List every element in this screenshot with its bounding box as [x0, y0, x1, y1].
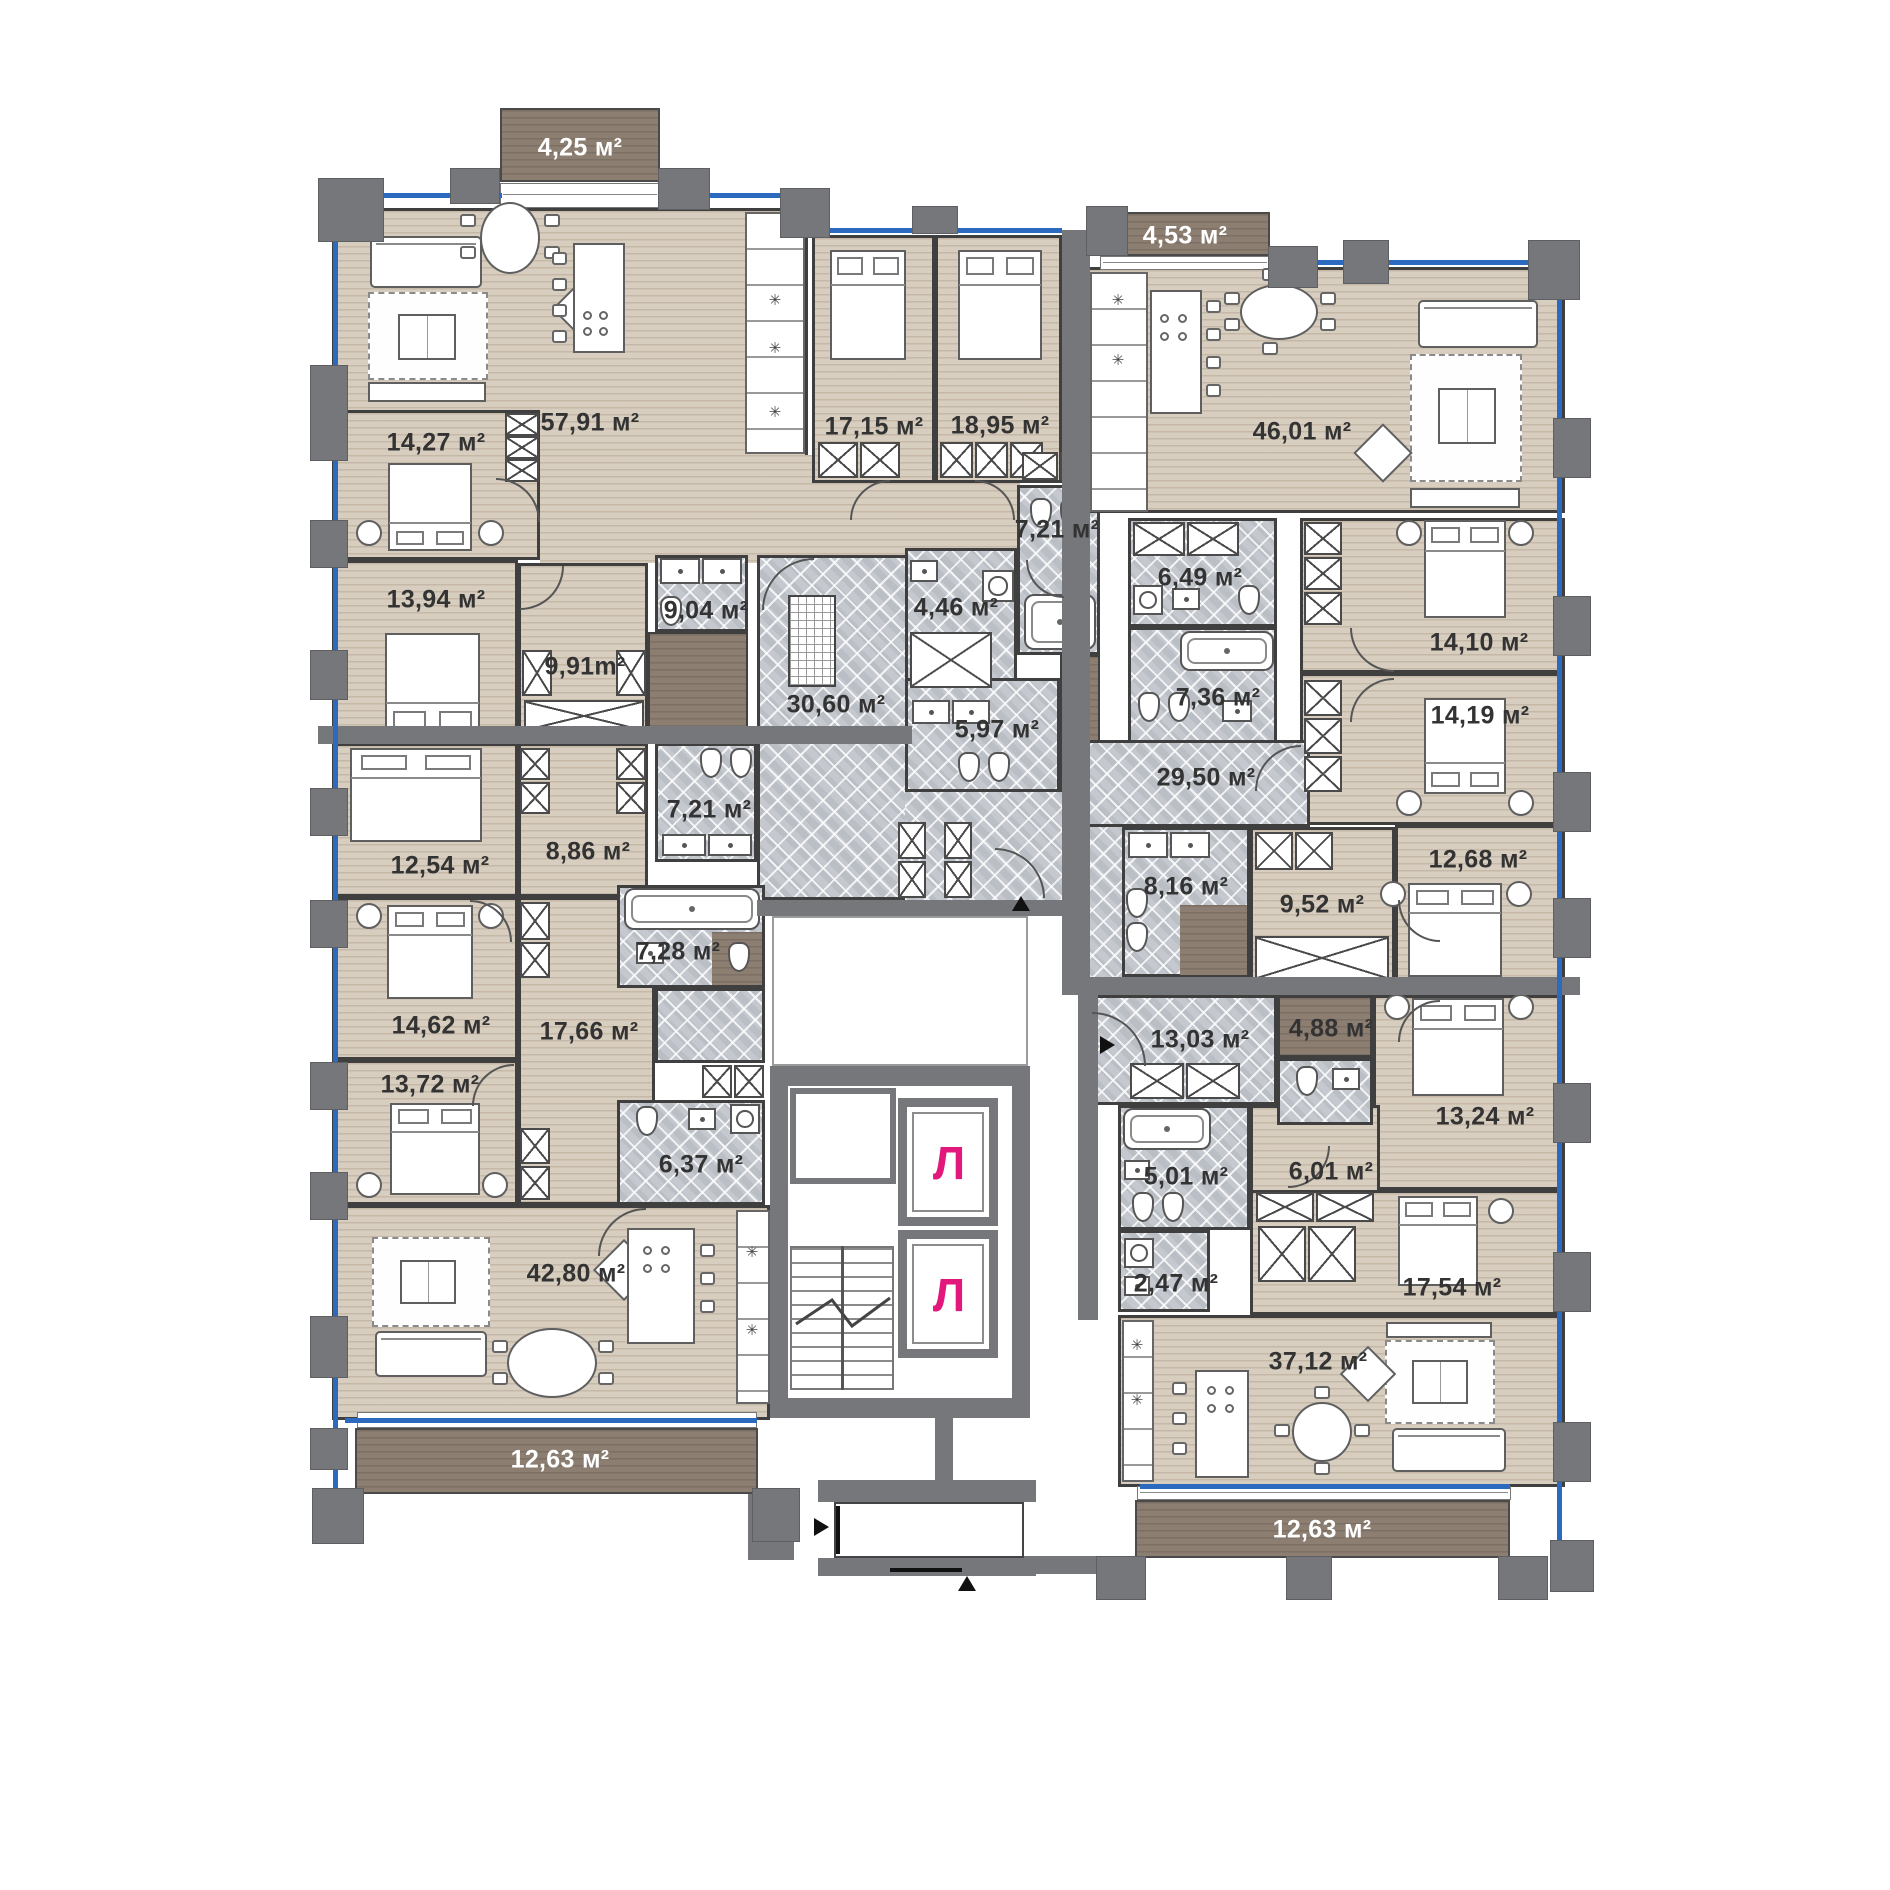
- closet: [520, 1166, 550, 1200]
- closet: [898, 861, 926, 898]
- freezer-icon: ✳: [769, 339, 782, 357]
- elevator-1-label: Л: [933, 1136, 965, 1190]
- chair: [1320, 318, 1336, 331]
- area-label-bath-6-37: 6,37 м²: [659, 1151, 744, 1180]
- stool: [552, 252, 567, 265]
- fridge-icon: ✳: [746, 1243, 759, 1261]
- closet: [520, 748, 550, 780]
- double-sink: [708, 834, 752, 856]
- area-label-balcony-bottom-right: 12,63 м²: [1273, 1516, 1372, 1545]
- area-label-hall-9-52: 9,52 м²: [1280, 891, 1365, 920]
- freezer-icon: ✳: [1131, 1391, 1144, 1409]
- closet: [520, 1128, 550, 1164]
- window-line-bottom-left: [345, 1418, 757, 1423]
- fridge-icon: ✳: [1131, 1336, 1144, 1354]
- closet: [520, 902, 550, 940]
- chair: [1274, 1424, 1290, 1437]
- pilaster: [1286, 1556, 1332, 1600]
- bed-14-62: [387, 905, 473, 999]
- area-label-bedroom-18-95: 18,95 м²: [951, 412, 1050, 441]
- closet: [702, 1065, 732, 1098]
- stool: [700, 1272, 715, 1285]
- window-band-top-left: [500, 183, 660, 208]
- pilaster: [310, 1172, 348, 1220]
- area-label-bedroom-12-54: 12,54 м²: [391, 852, 490, 881]
- laundry-cabinet: [910, 632, 992, 688]
- pilaster: [1553, 1422, 1591, 1482]
- area-label-bedroom-17-15: 17,15 м²: [825, 413, 924, 442]
- chair: [1262, 342, 1278, 355]
- closet: [818, 442, 858, 478]
- chair: [492, 1372, 508, 1385]
- stair-direction-zigzag: [794, 1290, 892, 1334]
- closet: [1255, 832, 1293, 870]
- closet: [1187, 522, 1239, 556]
- area-label-bath-7-21-center: 7,21 м²: [1015, 516, 1100, 545]
- closet: [975, 442, 1008, 478]
- core-wall-top: [770, 1066, 1030, 1086]
- elevator-2-label: Л: [933, 1268, 965, 1322]
- area-label-corridor-29-50: 29,50 м²: [1157, 764, 1256, 793]
- bed-18-95: [958, 250, 1042, 360]
- area-label-bath-7-36: 7,36 м²: [1176, 684, 1261, 713]
- stool: [1206, 356, 1221, 369]
- pilaster: [312, 1488, 364, 1544]
- entry-arrow-vestibule: [814, 1518, 829, 1536]
- chair: [544, 214, 560, 227]
- area-label-bedroom-14-10: 14,10 м²: [1430, 629, 1529, 658]
- pilaster: [310, 650, 348, 700]
- pilaster: [752, 1488, 800, 1542]
- closet: [1186, 1063, 1240, 1099]
- sofa: [1392, 1428, 1506, 1472]
- bathtub: [1123, 1108, 1211, 1150]
- closet: [1304, 557, 1342, 590]
- bathtub: [1180, 631, 1274, 671]
- core-wall-right: [1012, 1066, 1030, 1418]
- closet: [944, 861, 972, 898]
- closet: [1316, 1192, 1374, 1222]
- coffee-table: [1438, 388, 1496, 444]
- pilaster: [318, 178, 384, 242]
- area-label-balcony-bottom-left: 12,63 м²: [511, 1446, 610, 1475]
- pilaster: [1343, 240, 1389, 284]
- wine-icon: ✳: [769, 403, 782, 421]
- pilaster: [310, 788, 348, 836]
- bed-14-10: [1424, 520, 1506, 618]
- chair: [1224, 318, 1240, 331]
- closet: [734, 1065, 764, 1098]
- area-label-bedroom-13-72: 13,72 м²: [381, 1071, 480, 1100]
- entry-door-line: [890, 1568, 962, 1572]
- pilaster: [780, 188, 830, 238]
- core-wall-bottom: [770, 1398, 1030, 1418]
- wall-between-wings: [1062, 230, 1090, 995]
- entry-door-line: [836, 1506, 840, 1554]
- stool: [552, 330, 567, 343]
- pilaster: [310, 900, 348, 948]
- area-label-bedroom-14-62: 14,62 м²: [392, 1012, 491, 1041]
- machine-room: [790, 1088, 896, 1184]
- closet: [1304, 756, 1342, 792]
- closet: [520, 942, 550, 978]
- closet: [520, 782, 550, 814]
- closet: [860, 442, 900, 478]
- pilaster: [658, 168, 710, 210]
- double-sink: [1170, 832, 1210, 858]
- closet: [1258, 1226, 1306, 1282]
- area-label-bath-7-21-left: 7,21 м²: [667, 796, 752, 825]
- area-label-hall-8-86: 8,86 м²: [546, 838, 631, 867]
- area-label-utility-2-47: 2,47 м²: [1134, 1270, 1219, 1299]
- closet: [898, 822, 926, 859]
- chair: [1314, 1462, 1330, 1475]
- tv-bench: [1410, 488, 1520, 508]
- fridge-icon: ✳: [1112, 291, 1125, 309]
- bed-13-94: [385, 633, 480, 735]
- room-corridor-29-50-v: [1085, 827, 1122, 995]
- core-stub-wall: [935, 1418, 953, 1482]
- bed-13-72: [390, 1103, 480, 1195]
- closet: [1304, 718, 1342, 754]
- area-label-bedroom-17-54: 17,54 м²: [1403, 1274, 1502, 1303]
- nightstand: [1508, 994, 1534, 1020]
- double-sink: [660, 558, 700, 584]
- sink: [688, 1108, 716, 1130]
- chair: [598, 1372, 614, 1385]
- pilaster: [1553, 898, 1591, 958]
- sofa: [375, 1331, 487, 1377]
- dining-table: [1240, 284, 1318, 340]
- area-label-hall-13-03: 13,03 м²: [1151, 1026, 1250, 1055]
- nightstand: [356, 903, 382, 929]
- nightstand: [356, 520, 382, 546]
- pilaster: [310, 520, 348, 568]
- pilaster: [450, 168, 500, 204]
- entry-arrow-right-apartment: [1100, 1036, 1115, 1054]
- round-table: [1292, 1402, 1352, 1462]
- nightstand: [1508, 520, 1534, 546]
- area-label-living-42-80: 42,80 м²: [527, 1260, 626, 1289]
- area-label-bedroom-14-27: 14,27 м²: [387, 429, 486, 458]
- closet: [1304, 680, 1342, 716]
- area-label-hall-9-91: 9,91m²: [544, 653, 625, 682]
- pilaster: [1498, 1556, 1548, 1600]
- area-label-bath-5-97: 5,97 м²: [955, 716, 1040, 745]
- coffee-table: [400, 1260, 456, 1304]
- area-label-bath-9-04: 9,04 м²: [664, 597, 749, 626]
- kitchen-island: [1150, 290, 1202, 414]
- area-label-bath-5-01: 5,01 м²: [1144, 1163, 1229, 1192]
- dining-table: [507, 1328, 597, 1398]
- wall-left-horizontal: [318, 726, 912, 744]
- pilaster: [1550, 1540, 1594, 1592]
- area-label-bedroom-13-94: 13,94 м²: [387, 586, 486, 615]
- pilaster: [1553, 596, 1591, 656]
- tv-bench: [368, 382, 486, 402]
- area-label-balcony-top-right: 4,53 м²: [1143, 222, 1228, 251]
- washer: [730, 1104, 760, 1134]
- area-label-living-46-01: 46,01 м²: [1253, 418, 1352, 447]
- pilaster: [310, 1062, 348, 1110]
- closet: [944, 822, 972, 859]
- kitchen-island: [1195, 1370, 1249, 1478]
- vestibule-wall-top: [818, 1480, 1036, 1502]
- vanity-floor-brown-8-16: [1180, 905, 1247, 975]
- area-label-bedroom-13-24: 13,24 м²: [1436, 1103, 1535, 1132]
- kitchen-island: [573, 243, 625, 353]
- core-wall-left: [770, 1066, 788, 1418]
- coffee-table: [398, 314, 456, 360]
- pilaster: [1553, 772, 1591, 832]
- pilaster: [1268, 246, 1318, 288]
- entry-arrow-left-apartment: [1012, 896, 1030, 911]
- pilaster: [310, 1428, 348, 1470]
- bed-14-27: [388, 463, 472, 551]
- pilaster: [1096, 1556, 1146, 1600]
- stool: [700, 1300, 715, 1313]
- chair: [598, 1340, 614, 1353]
- bed-17-15: [830, 250, 906, 360]
- nightstand: [1488, 1198, 1514, 1224]
- closet: [1308, 1226, 1356, 1282]
- coffee-table: [1412, 1360, 1468, 1404]
- closet: [1295, 832, 1333, 870]
- vestibule-tile-17-66: [655, 988, 765, 1063]
- nightstand: [356, 1172, 382, 1198]
- closet: [1304, 592, 1342, 625]
- pilaster: [1553, 1252, 1591, 1312]
- stool: [1206, 328, 1221, 341]
- closet: [1304, 522, 1342, 555]
- chair: [1314, 1386, 1330, 1399]
- double-sink: [662, 834, 706, 856]
- pilaster: [1528, 240, 1580, 300]
- area-label-bedroom-14-19: 14,19 м²: [1431, 702, 1530, 731]
- pilaster: [310, 1316, 348, 1378]
- pilaster: [1086, 206, 1128, 256]
- chair: [460, 214, 476, 227]
- fridge-icon: ✳: [769, 291, 782, 309]
- closet: [505, 436, 539, 459]
- entry-arrow-building: [958, 1576, 976, 1591]
- closet: [505, 413, 539, 436]
- floor-plan: ✳ ✳ ✳ ✳ ✳: [0, 0, 1890, 1890]
- nightstand: [1506, 881, 1532, 907]
- stool: [552, 278, 567, 291]
- pilaster: [1553, 1083, 1591, 1143]
- walkin-floor-brown: [648, 632, 748, 730]
- vestibule-wall-bottom: [818, 1558, 1036, 1576]
- nightstand: [1396, 520, 1422, 546]
- chair: [492, 1340, 508, 1353]
- chair: [1224, 292, 1240, 305]
- closet: [1133, 522, 1185, 556]
- stool: [1172, 1382, 1187, 1395]
- area-label-bath-4-88: 4,88 м²: [1289, 1015, 1374, 1044]
- freezer-icon: ✳: [1112, 351, 1125, 369]
- area-label-bedroom-12-68: 12,68 м²: [1429, 846, 1528, 875]
- stool: [1172, 1442, 1187, 1455]
- sofa: [1418, 300, 1538, 348]
- nightstand: [482, 1172, 508, 1198]
- pilaster: [310, 365, 348, 461]
- closet: [1130, 1063, 1184, 1099]
- chair: [1320, 292, 1336, 305]
- area-label-corridor-17-66: 17,66 м²: [540, 1018, 639, 1047]
- sink: [910, 560, 938, 582]
- area-label-bath-6-49: 6,49 м²: [1158, 564, 1243, 593]
- area-label-balcony-top-left: 4,25 м²: [538, 134, 623, 163]
- area-label-hall-6-01: 6,01 м²: [1289, 1158, 1374, 1187]
- sofa: [370, 236, 482, 288]
- double-sink: [702, 558, 742, 584]
- washer: [1124, 1238, 1154, 1268]
- kitchen-counter: [736, 1210, 770, 1404]
- entry-vestibule: [834, 1502, 1024, 1558]
- bathtub: [624, 888, 760, 930]
- vestibule-right-stub: [1024, 1556, 1098, 1574]
- nightstand: [1508, 790, 1534, 816]
- stool: [1206, 300, 1221, 313]
- window-band-top-right: [1100, 256, 1270, 270]
- freezer-icon: ✳: [746, 1321, 759, 1339]
- bed-17-54: [1398, 1196, 1478, 1286]
- closet: [616, 748, 646, 780]
- bed-12-54: [350, 748, 482, 842]
- wardrobe: [1255, 936, 1389, 980]
- area-label-living-57-91: 57,91 м²: [541, 409, 640, 438]
- stool: [700, 1244, 715, 1257]
- pilaster: [1553, 418, 1591, 478]
- closet: [1022, 452, 1058, 480]
- closet: [940, 442, 973, 478]
- nightstand: [1396, 790, 1422, 816]
- tv-bench: [1386, 1322, 1492, 1338]
- nightstand: [478, 520, 504, 546]
- closet: [616, 782, 646, 814]
- double-sink: [912, 700, 950, 724]
- area-label-corridor-30-60: 30,60 м²: [787, 691, 886, 720]
- area-label-bath-8-16: 8,16 м²: [1144, 873, 1229, 902]
- stool: [1172, 1412, 1187, 1425]
- window-line-bottom-right: [1140, 1484, 1510, 1489]
- dining-table: [480, 202, 540, 274]
- double-sink: [1128, 832, 1168, 858]
- stool: [552, 304, 567, 317]
- stool: [1206, 384, 1221, 397]
- shaft-void: [772, 916, 1028, 1066]
- sink: [1332, 1068, 1360, 1090]
- area-label-living-37-12: 37,12 м²: [1269, 1348, 1368, 1377]
- closet: [1256, 1192, 1314, 1222]
- closet: [505, 459, 539, 482]
- area-label-bath-7-28: 7,28 м²: [636, 938, 721, 967]
- chair: [1354, 1424, 1370, 1437]
- area-label-bath-4-46: 4,46 м²: [914, 594, 999, 623]
- wall-right-horizontal: [1078, 977, 1580, 995]
- pilaster: [912, 206, 958, 234]
- chair: [460, 246, 476, 259]
